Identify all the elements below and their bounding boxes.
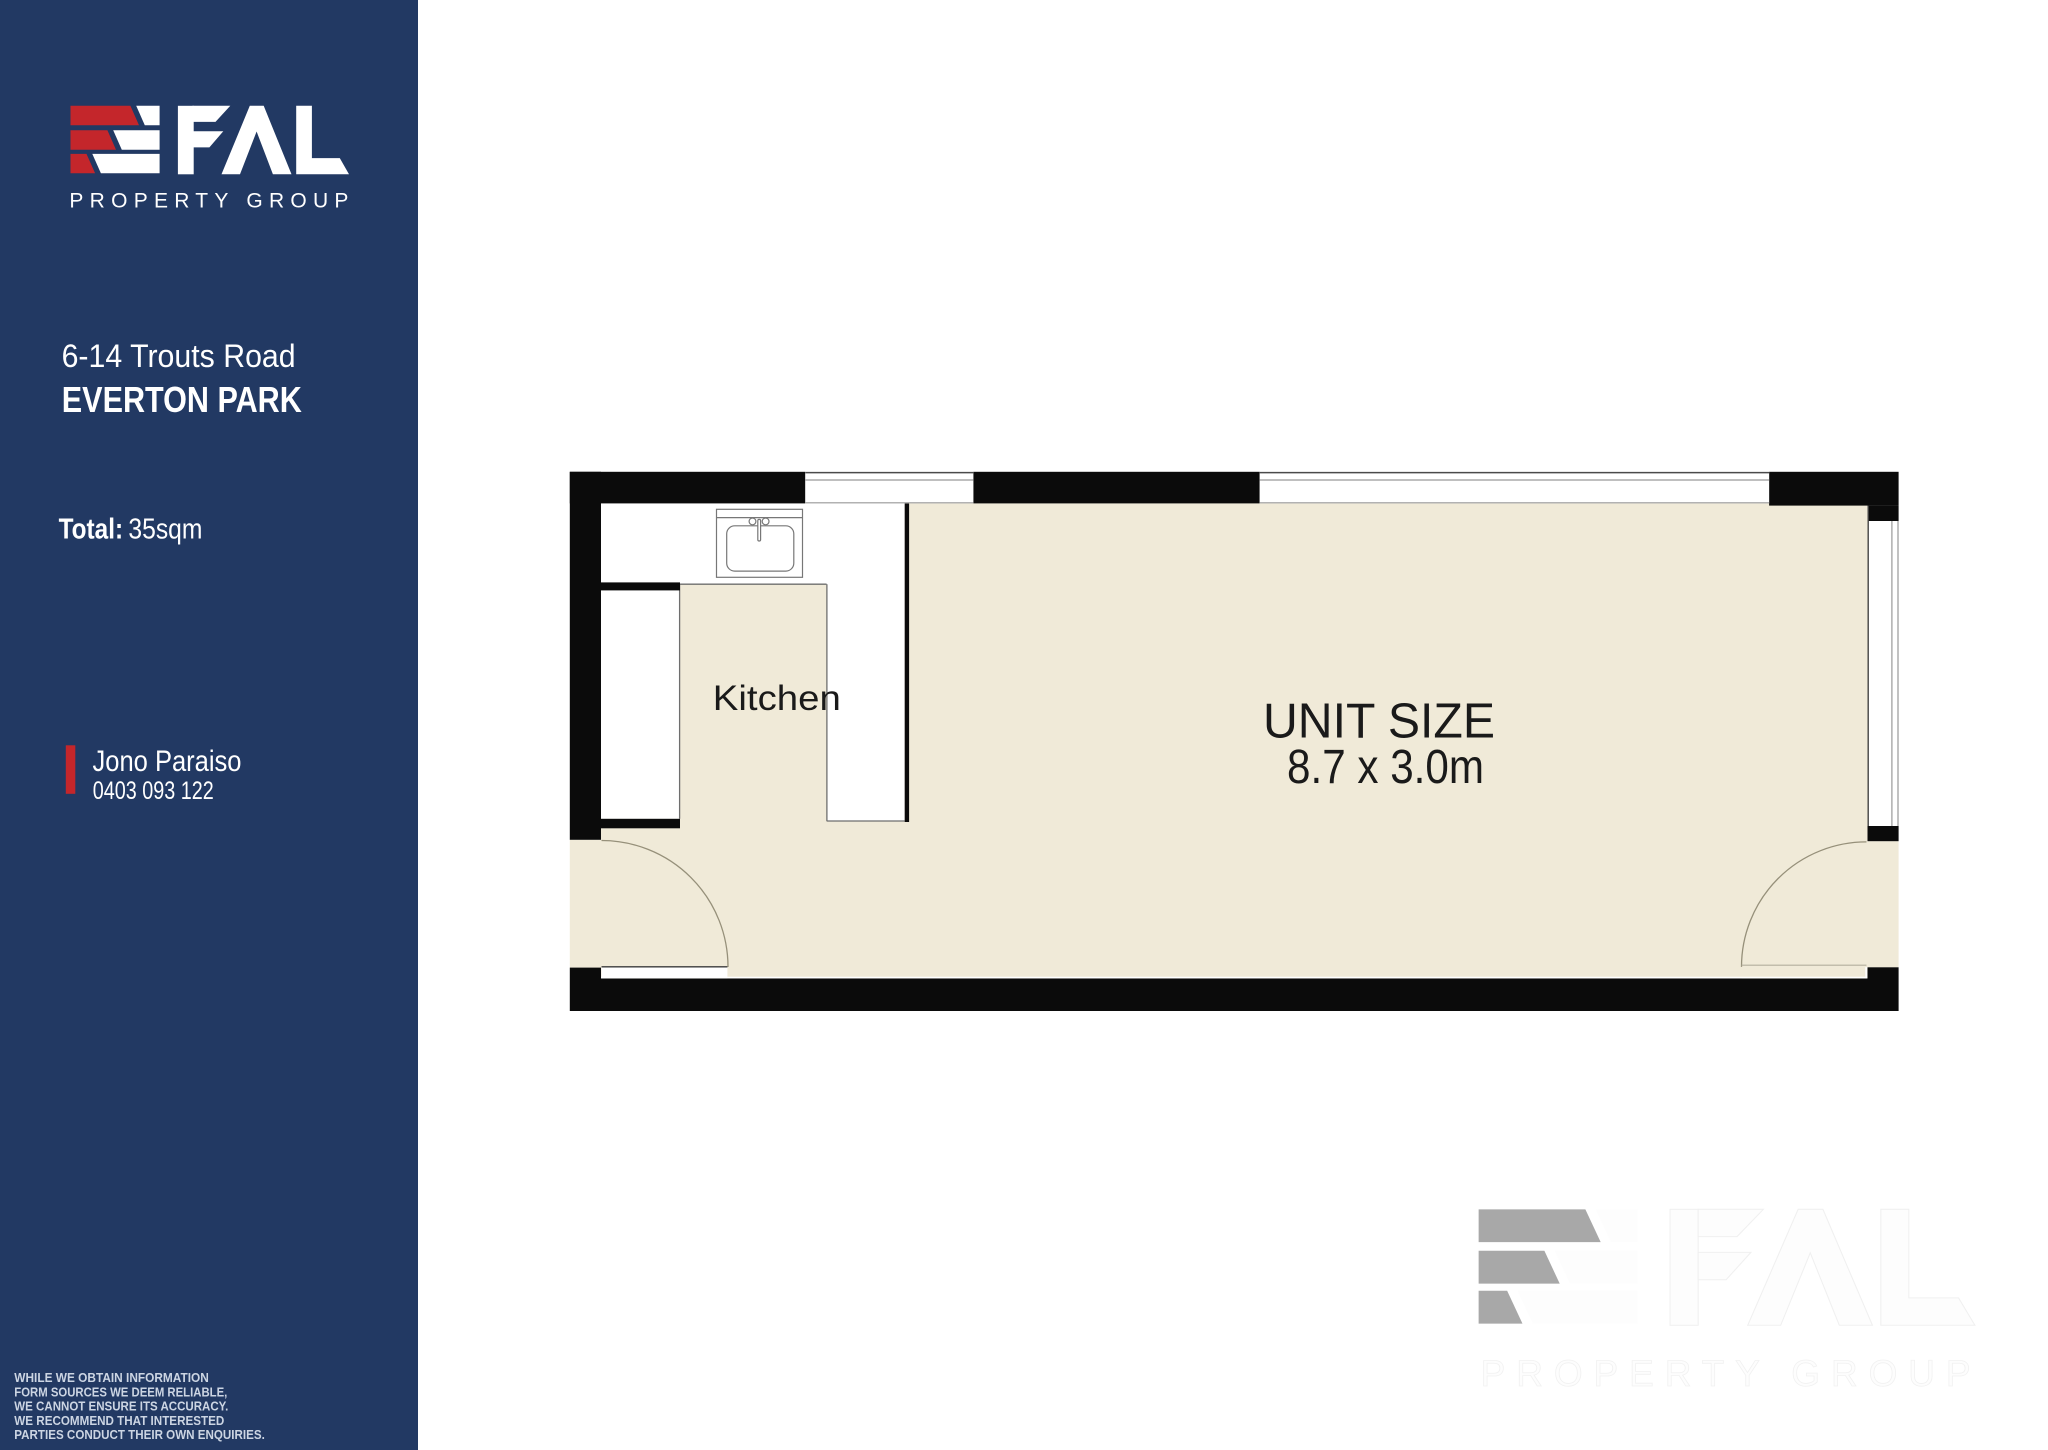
svg-text:PARTIES CONDUCT THEIR OWN ENQU: PARTIES CONDUCT THEIR OWN ENQUIRIES. [14,1427,264,1442]
svg-text:35sqm: 35sqm [128,514,202,546]
svg-text:EVERTON PARK: EVERTON PARK [62,379,302,420]
svg-text:8.7 x 3.0m: 8.7 x 3.0m [1287,741,1484,794]
svg-text:Jono Paraiso: Jono Paraiso [93,745,242,778]
svg-text:WE RECOMMEND THAT INTERESTED: WE RECOMMEND THAT INTERESTED [14,1413,224,1428]
svg-text:Kitchen: Kitchen [713,679,841,718]
svg-text:FORM SOURCES WE DEEM RELIABLE,: FORM SOURCES WE DEEM RELIABLE, [14,1384,227,1399]
svg-text:WE CANNOT ENSURE ITS ACCURACY.: WE CANNOT ENSURE ITS ACCURACY. [14,1399,228,1414]
svg-text:Total:: Total: [59,514,124,546]
svg-text:WHILE WE OBTAIN INFORMATION: WHILE WE OBTAIN INFORMATION [14,1370,209,1385]
svg-text:0403 093 122: 0403 093 122 [93,777,214,805]
svg-text:6-14 Trouts Road: 6-14 Trouts Road [62,338,296,374]
